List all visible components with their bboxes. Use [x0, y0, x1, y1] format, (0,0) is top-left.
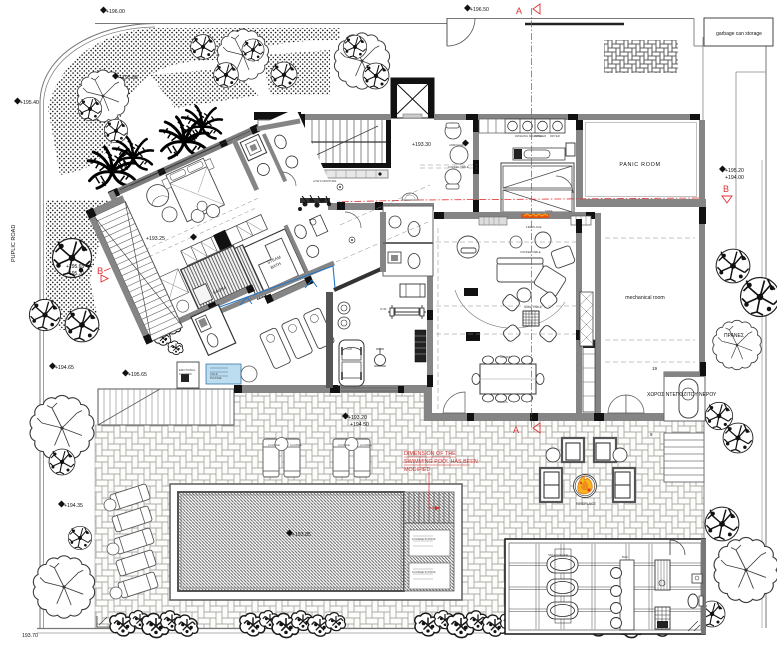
svg-text:A: A [513, 425, 519, 435]
svg-text:+194.00: +194.00 [725, 175, 744, 181]
svg-text:DRYER: DRYER [550, 134, 560, 138]
svg-text:ΧΩΡΟΣ ΝΤΕΠΟΖΙΤΟΥ ΝΕΡΟΥ: ΧΩΡΟΣ ΝΤΕΠΟΖΙΤΟΥ ΝΕΡΟΥ [647, 392, 717, 398]
svg-text:193.70: 193.70 [22, 633, 38, 639]
svg-text:+195.40: +195.40 [20, 100, 39, 106]
svg-text:PUPLIC ROAD: PUPLIC ROAD [11, 225, 17, 262]
svg-text:SHOWER: SHOWER [179, 372, 192, 376]
svg-text:LOW FURNITURE: LOW FURNITURE [313, 179, 336, 183]
svg-text:MODIFIED: MODIFIED [404, 467, 430, 473]
svg-text:FIREPLACE: FIREPLACE [526, 225, 542, 229]
svg-text:DIMENSION OF THE: DIMENSION OF THE [404, 451, 456, 457]
svg-text:SWIMMING POOL HAS BEEN: SWIMMING POOL HAS BEEN [404, 459, 478, 465]
svg-text:+193.20: +193.20 [348, 415, 367, 421]
svg-text:PLUNGE: PLUNGE [210, 376, 222, 380]
svg-text:+194.50: +194.50 [350, 422, 369, 428]
svg-text:COFFEE TABLE: COFFEE TABLE [448, 165, 469, 169]
svg-text:+195.20: +195.20 [725, 168, 744, 174]
svg-text:+195.85: +195.85 [119, 75, 138, 81]
svg-text:ΠΡΑΝΕΣ: ΠΡΑΝΕΣ [724, 333, 744, 339]
svg-text:19: 19 [652, 366, 658, 371]
svg-text:B: B [723, 184, 729, 194]
svg-text:LOUNGE IN POOL: LOUNGE IN POOL [412, 537, 436, 541]
svg-text:BAR: BAR [622, 555, 628, 559]
svg-text:+194.35: +194.35 [64, 503, 83, 509]
svg-text:garbage can storage: garbage can storage [716, 31, 762, 37]
svg-text:+196.50: +196.50 [470, 7, 489, 13]
svg-text:mechanical room: mechanical room [625, 295, 665, 301]
svg-text:SOFA: SOFA [545, 209, 553, 213]
svg-text:+196.00: +196.00 [106, 9, 125, 15]
svg-text:LOUNGE: LOUNGE [290, 443, 302, 447]
svg-text:CHAIRS: CHAIRS [497, 400, 508, 404]
svg-text:LOUNGE IN POOL: LOUNGE IN POOL [412, 570, 436, 574]
svg-text:SPA LOUNGER: SPA LOUNGER [548, 553, 568, 557]
svg-text:A: A [516, 6, 522, 16]
svg-text:LOUNGE: LOUNGE [338, 443, 350, 447]
svg-text:LOUNGE: LOUNGE [268, 443, 280, 447]
svg-text:COFFEE TABLE: COFFEE TABLE [520, 250, 541, 254]
svg-text:FIREPLACE: FIREPLACE [576, 502, 597, 506]
svg-text:WASHER: WASHER [534, 134, 546, 138]
svg-text:LOUNGE: LOUNGE [360, 443, 372, 447]
svg-text:CHAIRS: CHAIRS [500, 355, 511, 359]
svg-text:+193.25: +193.25 [146, 236, 165, 242]
svg-text:GAME TABLE: GAME TABLE [524, 305, 542, 309]
svg-text:+195.70: +195.70 [66, 271, 84, 277]
svg-text:+195.65: +195.65 [66, 264, 84, 270]
svg-text:+193.30: +193.30 [412, 142, 431, 148]
svg-text:+195.65: +195.65 [128, 372, 147, 378]
svg-text:PANIC ROOM: PANIC ROOM [619, 162, 660, 168]
svg-text:+193.85: +193.85 [292, 532, 311, 538]
svg-text:GYM: GYM [380, 307, 387, 311]
svg-text:ARMCHAIR: ARMCHAIR [449, 143, 464, 147]
svg-text:CAR: CAR [346, 347, 352, 351]
svg-text:+194.65: +194.65 [55, 365, 74, 371]
